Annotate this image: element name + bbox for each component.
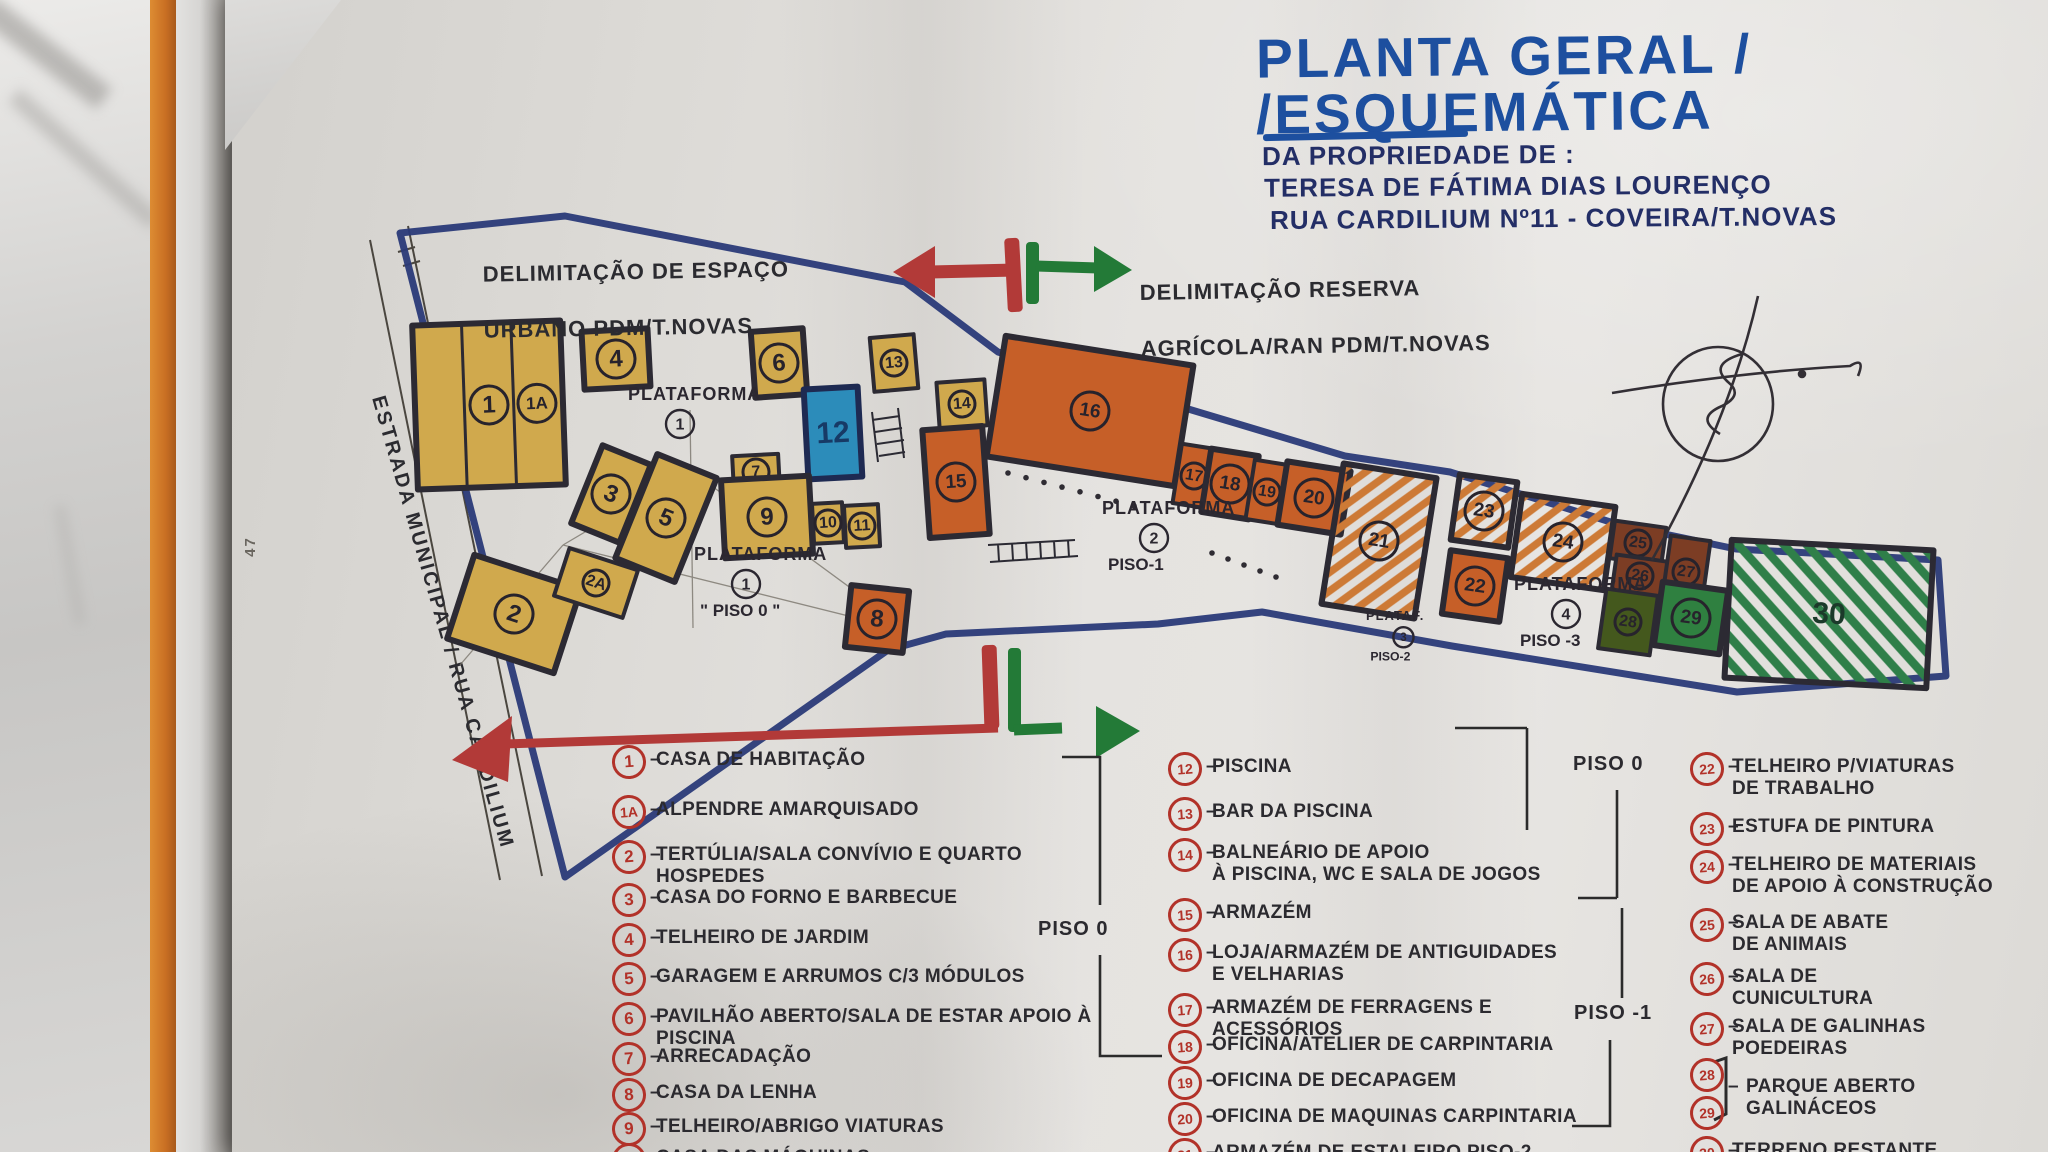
legend-item-26: SALA DE CUNICULTURA (1732, 966, 1873, 1010)
photographed-site-plan: 47 ESTRADA MUNICIPAL / RUA CARDILIUM (0, 0, 2048, 1152)
svg-text:30: 30 (1811, 597, 1846, 632)
svg-text:PISO-2: PISO-2 (1370, 649, 1410, 663)
legend-item-23: ESTUFA DE PINTURA (1732, 816, 1934, 838)
legend-item-25: SALA DE ABATE DE ANIMAIS (1732, 912, 1889, 956)
building-15: 15 (922, 426, 989, 538)
svg-text:PISO-1: PISO-1 (1108, 555, 1164, 574)
svg-text:28: 28 (1618, 612, 1638, 631)
compass-north-icon (1612, 296, 1861, 560)
legend-item-9: TELHEIRO/ABRIGO VIATURAS (656, 1116, 944, 1138)
legend-item-4: TELHEIRO DE JARDIM (656, 927, 869, 949)
svg-text:10: 10 (819, 514, 838, 532)
legend-brackets (1062, 728, 1726, 1126)
legend-piso-marker: PISO 0 (1038, 918, 1108, 941)
building-23: 23 (1451, 474, 1518, 547)
svg-text:PLATAFORMA: PLATAFORMA (1514, 574, 1647, 594)
legend-item-2: TERTÚLIA/SALA CONVÍVIO E QUARTO HOSPEDES (656, 844, 1126, 888)
svg-text:PISO -3: PISO -3 (1520, 631, 1580, 650)
legend-item-14: BALNEÁRIO DE APOIO À PISCINA, WC E SALA … (1212, 842, 1541, 886)
svg-text:13: 13 (884, 354, 903, 372)
svg-text:12: 12 (815, 416, 850, 451)
legend-item-10: CASA DAS MÁQUINAS (656, 1147, 870, 1152)
svg-text:21: 21 (1367, 529, 1392, 553)
legend-item-5: GARAGEM E ARRUMOS C/3 MÓDULOS (656, 966, 1025, 988)
building-13: 13 (870, 334, 919, 392)
building-12: 12 (804, 387, 863, 480)
legend-item-1A: ALPENDRE AMARQUISADO (656, 799, 919, 821)
legend-item-29: PARQUE ABERTO GALINÁCEOS (1746, 1076, 1916, 1120)
legend-item-1: CASA DE HABITAÇÃO (656, 749, 865, 771)
building-10: 10 (812, 502, 844, 544)
svg-text:14: 14 (953, 395, 972, 413)
legend-item-18: OFICINA/ATELIER DE CARPINTARIA (1212, 1034, 1554, 1056)
svg-text:18: 18 (1218, 472, 1242, 496)
svg-text:11: 11 (853, 517, 871, 535)
title-subline1: DA PROPRIEDADE DE : (1262, 139, 1575, 172)
legend-item-16: LOJA/ARMAZÉM DE ANTIGUIDADES E VELHARIAS (1212, 942, 1557, 986)
svg-text:" PISO 0 ": " PISO 0 " (700, 601, 780, 620)
building-28: 28 (1598, 589, 1658, 656)
svg-text:8: 8 (869, 605, 885, 633)
svg-text:4: 4 (1562, 607, 1571, 624)
svg-text:23: 23 (1472, 499, 1496, 523)
building-29: 29 (1654, 582, 1728, 655)
building-22: 22 (1442, 550, 1508, 621)
svg-text:19: 19 (1257, 482, 1277, 502)
reserve-delimitation-label: DELIMITAÇÃO RESERVA AGRÍCOLA/RAN PDM/T.N… (1139, 245, 1491, 363)
legend-item-13: BAR DA PISCINA (1212, 801, 1373, 823)
reserve-delimitation-arrow-icon (1026, 242, 1132, 304)
legend-piso-marker: PISO 0 (1573, 753, 1643, 776)
urban-delimitation-line2: URBANO PDM/T.NOVAS (484, 313, 754, 343)
urban-delimitation-arrow-icon (893, 238, 1023, 313)
legend-item-21: ARMAZÉM DE ESTALEIRO PISO-2 (1212, 1142, 1532, 1152)
svg-text:PLATAFORMA: PLATAFORMA (628, 384, 761, 404)
svg-text:27: 27 (1676, 562, 1696, 581)
svg-text:9: 9 (760, 503, 775, 531)
reserve-delimitation-arrow-bottom-icon (1008, 648, 1140, 758)
svg-text:1: 1 (676, 417, 685, 434)
reserve-delimitation-line2: AGRÍCOLA/RAN PDM/T.NOVAS (1141, 330, 1491, 361)
legend-item-24: TELHEIRO DE MATERIAIS DE APOIO À CONSTRU… (1732, 854, 1993, 898)
legend-item-15: ARMAZÉM (1212, 902, 1312, 924)
legend-item-6: PAVILHÃO ABERTO/SALA DE ESTAR APOIO À PI… (656, 1006, 1126, 1050)
svg-text:2: 2 (1150, 531, 1159, 548)
urban-delimitation-line1: DELIMITAÇÃO DE ESPAÇO (483, 256, 790, 286)
legend-item-27: SALA DE GALINHAS POEDEIRAS (1732, 1016, 1926, 1060)
svg-text:PLATAFORMA: PLATAFORMA (694, 544, 827, 564)
legend-item-12: PISCINA (1212, 756, 1292, 778)
svg-text:29: 29 (1679, 606, 1703, 630)
building-11: 11 (844, 504, 880, 548)
svg-text:17: 17 (1184, 466, 1204, 486)
legend-item-30: TERRENO RESTANTE (1732, 1140, 1938, 1152)
svg-text:PLATAFORMA: PLATAFORMA (1102, 498, 1235, 518)
owner-name: TERESA DE FÁTIMA DIAS LOURENÇO (1264, 169, 1772, 204)
svg-text:20: 20 (1302, 486, 1326, 510)
svg-text:25: 25 (1628, 533, 1648, 552)
svg-text:16: 16 (1078, 399, 1102, 423)
svg-text:6: 6 (771, 349, 786, 377)
building-8: 8 (845, 585, 909, 653)
svg-text:1: 1 (482, 391, 496, 418)
building-30: 30 (1725, 540, 1934, 688)
legend-item-22: TELHEIRO P/VIATURAS DE TRABALHO (1732, 756, 1955, 800)
legend-item-7: ARRECADAÇÃO (656, 1046, 811, 1068)
svg-text:22: 22 (1463, 574, 1487, 598)
legend-item-8: CASA DA LENHA (656, 1082, 817, 1104)
urban-delimitation-label: DELIMITAÇÃO DE ESPAÇO URBANO PDM/T.NOVAS (482, 227, 790, 344)
legend-item-20: OFICINA DE MAQUINAS CARPINTARIA (1212, 1106, 1577, 1128)
platform-label-2: PLATAFORMA2PISO-1 (1102, 498, 1235, 574)
property-address: RUA CARDILIUM Nº11 - COVEIRA/T.NOVAS (1270, 201, 1837, 236)
legend-item-3: CASA DO FORNO E BARBECUE (656, 887, 957, 909)
svg-text:1: 1 (742, 577, 751, 594)
svg-text:3: 3 (1400, 632, 1406, 644)
svg-text:4: 4 (609, 345, 624, 373)
building-21: 21 (1321, 464, 1436, 619)
legend-dash: – (1728, 1076, 1739, 1098)
svg-text:15: 15 (945, 471, 968, 493)
building-1: 1A1 (412, 320, 566, 489)
legend-item-19: OFICINA DE DECAPAGEM (1212, 1070, 1456, 1092)
building-14: 14 (936, 379, 987, 428)
platform-label-1: PLATAFORMA1 (628, 384, 761, 438)
reserve-delimitation-line1: DELIMITAÇÃO RESERVA (1140, 275, 1421, 305)
svg-text:PLATAF.: PLATAF. (1366, 608, 1424, 623)
svg-text:24: 24 (1551, 530, 1575, 554)
svg-text:1A: 1A (526, 393, 548, 413)
